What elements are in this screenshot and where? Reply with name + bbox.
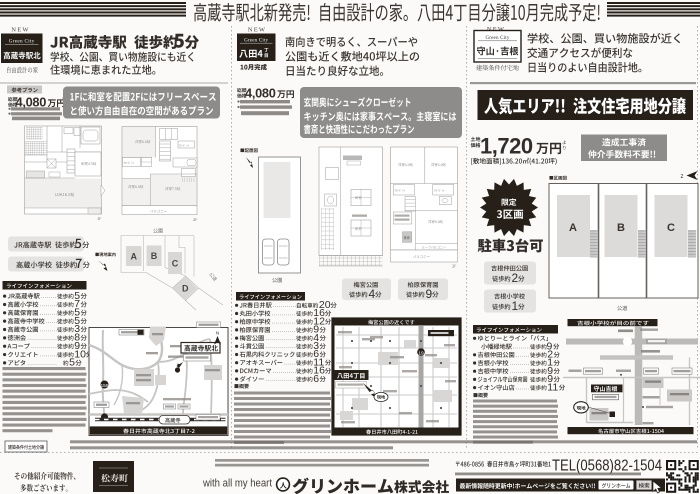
svg-text:with all my heart: with all my heart [202,478,272,490]
svg-text:B: B [617,222,625,234]
svg-text:10: 10 [74,348,86,360]
svg-text:N: N [216,331,219,336]
svg-text:Green City: Green City [485,36,509,41]
svg-text:1,720: 1,720 [480,134,533,159]
svg-text:2: 2 [512,271,519,285]
svg-text:z: z [681,174,684,180]
svg-text:B: B [151,251,158,261]
svg-text:A: A [569,222,577,234]
svg-text:155: 155 [100,383,108,389]
svg-text:9: 9 [426,287,433,301]
svg-text:TEL(0568)82-1504: TEL(0568)82-1504 [552,458,662,475]
svg-text:1: 1 [512,299,519,313]
svg-text:D: D [182,284,189,294]
svg-text:Green City: Green City [9,39,35,45]
svg-text:5: 5 [69,357,75,369]
svg-text:11: 11 [547,381,558,393]
svg-text:19: 19 [418,350,424,356]
svg-text:Green City: Green City [244,39,268,44]
svg-text:NEW: NEW [11,27,29,34]
svg-text:6: 6 [313,373,319,385]
svg-text:NEW: NEW [248,27,266,34]
svg-text:4,080: 4,080 [245,86,276,101]
svg-text:A: A [130,252,137,262]
svg-text:4,080: 4,080 [16,95,47,110]
svg-text:C: C [172,259,179,269]
svg-text:C: C [667,222,675,234]
svg-text:4: 4 [369,287,376,301]
